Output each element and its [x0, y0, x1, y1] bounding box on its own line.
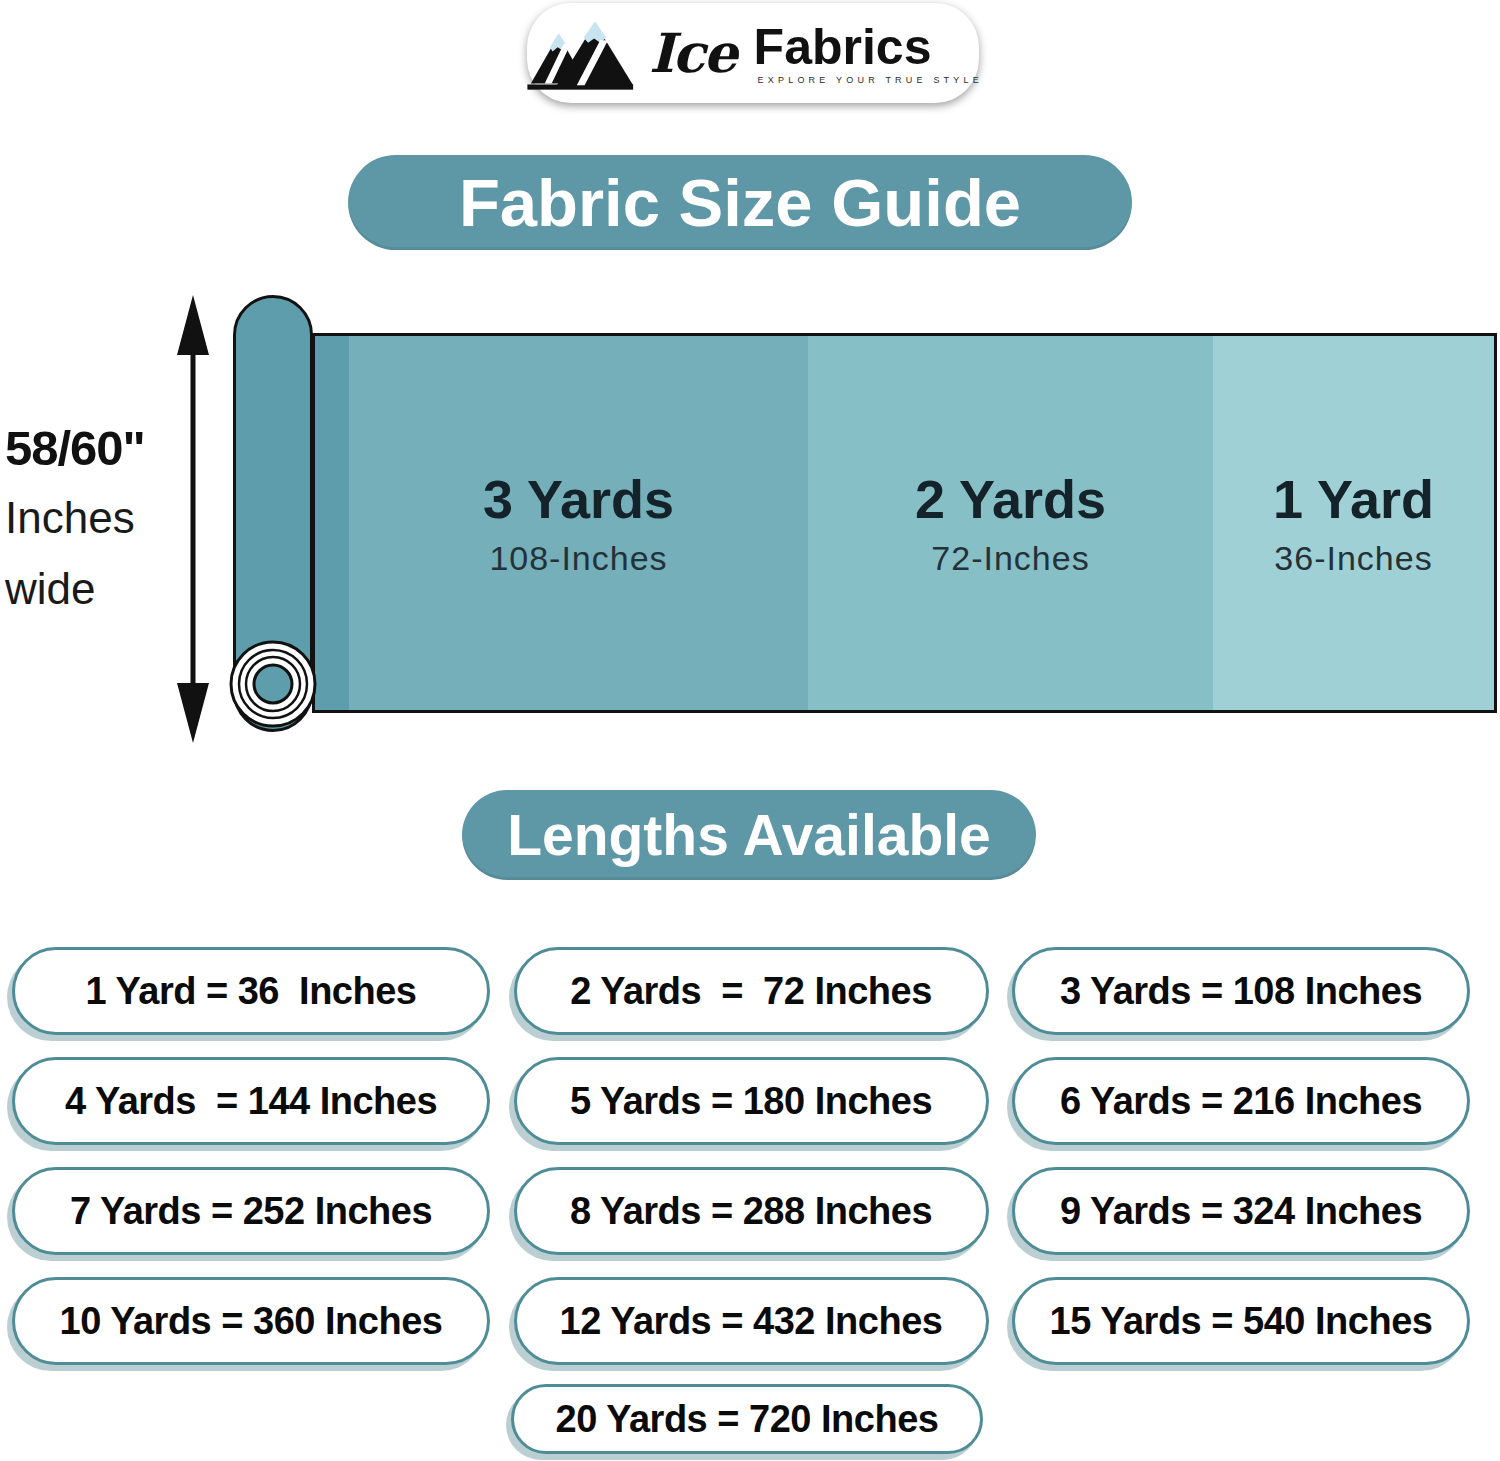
- width-dimension-label: 58/60" Inches wide: [5, 424, 185, 638]
- lengths-row-3: 7 Yards = 252 Inches 8 Yards = 288 Inche…: [12, 1167, 1470, 1255]
- section-inches-label: 72-Inches: [931, 541, 1089, 575]
- brand-logo-card: Ice Fabrics EXPLORE YOUR TRUE STYLE: [527, 3, 979, 103]
- length-pill: 20 Yards = 720 Inches: [511, 1384, 983, 1454]
- length-pill: 4 Yards = 144 Inches: [12, 1057, 490, 1145]
- fabric-fold-shadow: [315, 336, 349, 710]
- section-inches-label: 108-Inches: [489, 541, 667, 575]
- lengths-row-4: 10 Yards = 360 Inches 12 Yards = 432 Inc…: [12, 1277, 1470, 1365]
- length-pill: 12 Yards = 432 Inches: [514, 1277, 989, 1365]
- length-pill: 5 Yards = 180 Inches: [514, 1057, 989, 1145]
- fabric-size-guide-infographic: Ice Fabrics EXPLORE YOUR TRUE STYLE Fabr…: [0, 0, 1500, 1461]
- brand-name-ice: Ice: [649, 26, 736, 80]
- length-pill: 8 Yards = 288 Inches: [514, 1167, 989, 1255]
- length-pill: 7 Yards = 252 Inches: [12, 1167, 490, 1255]
- length-pill: 6 Yards = 216 Inches: [1012, 1057, 1470, 1145]
- length-pill: 15 Yards = 540 Inches: [1012, 1277, 1470, 1365]
- width-unit: Inches: [5, 496, 185, 540]
- length-pill: 10 Yards = 360 Inches: [12, 1277, 490, 1365]
- section-2-yards: 2 Yards 72-Inches: [808, 336, 1213, 710]
- width-value: 58/60": [5, 424, 185, 473]
- section-yards-label: 3 Yards: [483, 472, 674, 526]
- length-pill: 1 Yard = 36 Inches: [12, 947, 490, 1035]
- mountains-icon: [523, 16, 641, 94]
- lengths-available-title: Lengths Available: [462, 790, 1036, 880]
- fabric-sheet: 3 Yards 108-Inches 2 Yards 72-Inches 1 Y…: [312, 333, 1497, 713]
- double-arrow-icon: [160, 295, 226, 743]
- length-pill: 9 Yards = 324 Inches: [1012, 1167, 1470, 1255]
- lengths-row-1: 1 Yard = 36 Inches 2 Yards = 72 Inches 3…: [12, 947, 1470, 1035]
- section-yards-label: 1 Yard: [1273, 472, 1434, 526]
- roll-end-rings-icon: [227, 638, 319, 730]
- length-pill: 3 Yards = 108 Inches: [1012, 947, 1470, 1035]
- section-inches-label: 36-Inches: [1274, 541, 1432, 575]
- section-3-yards: 3 Yards 108-Inches: [349, 336, 808, 710]
- lengths-row-2: 4 Yards = 144 Inches 5 Yards = 180 Inche…: [12, 1057, 1470, 1145]
- width-word: wide: [5, 567, 185, 611]
- page-title: Fabric Size Guide: [348, 155, 1132, 250]
- brand-name-fabrics: Fabrics: [754, 22, 932, 72]
- length-pill: 2 Yards = 72 Inches: [514, 947, 989, 1035]
- brand-tagline: EXPLORE YOUR TRUE STYLE: [758, 75, 983, 85]
- section-1-yard: 1 Yard 36-Inches: [1213, 336, 1494, 710]
- section-yards-label: 2 Yards: [915, 472, 1106, 526]
